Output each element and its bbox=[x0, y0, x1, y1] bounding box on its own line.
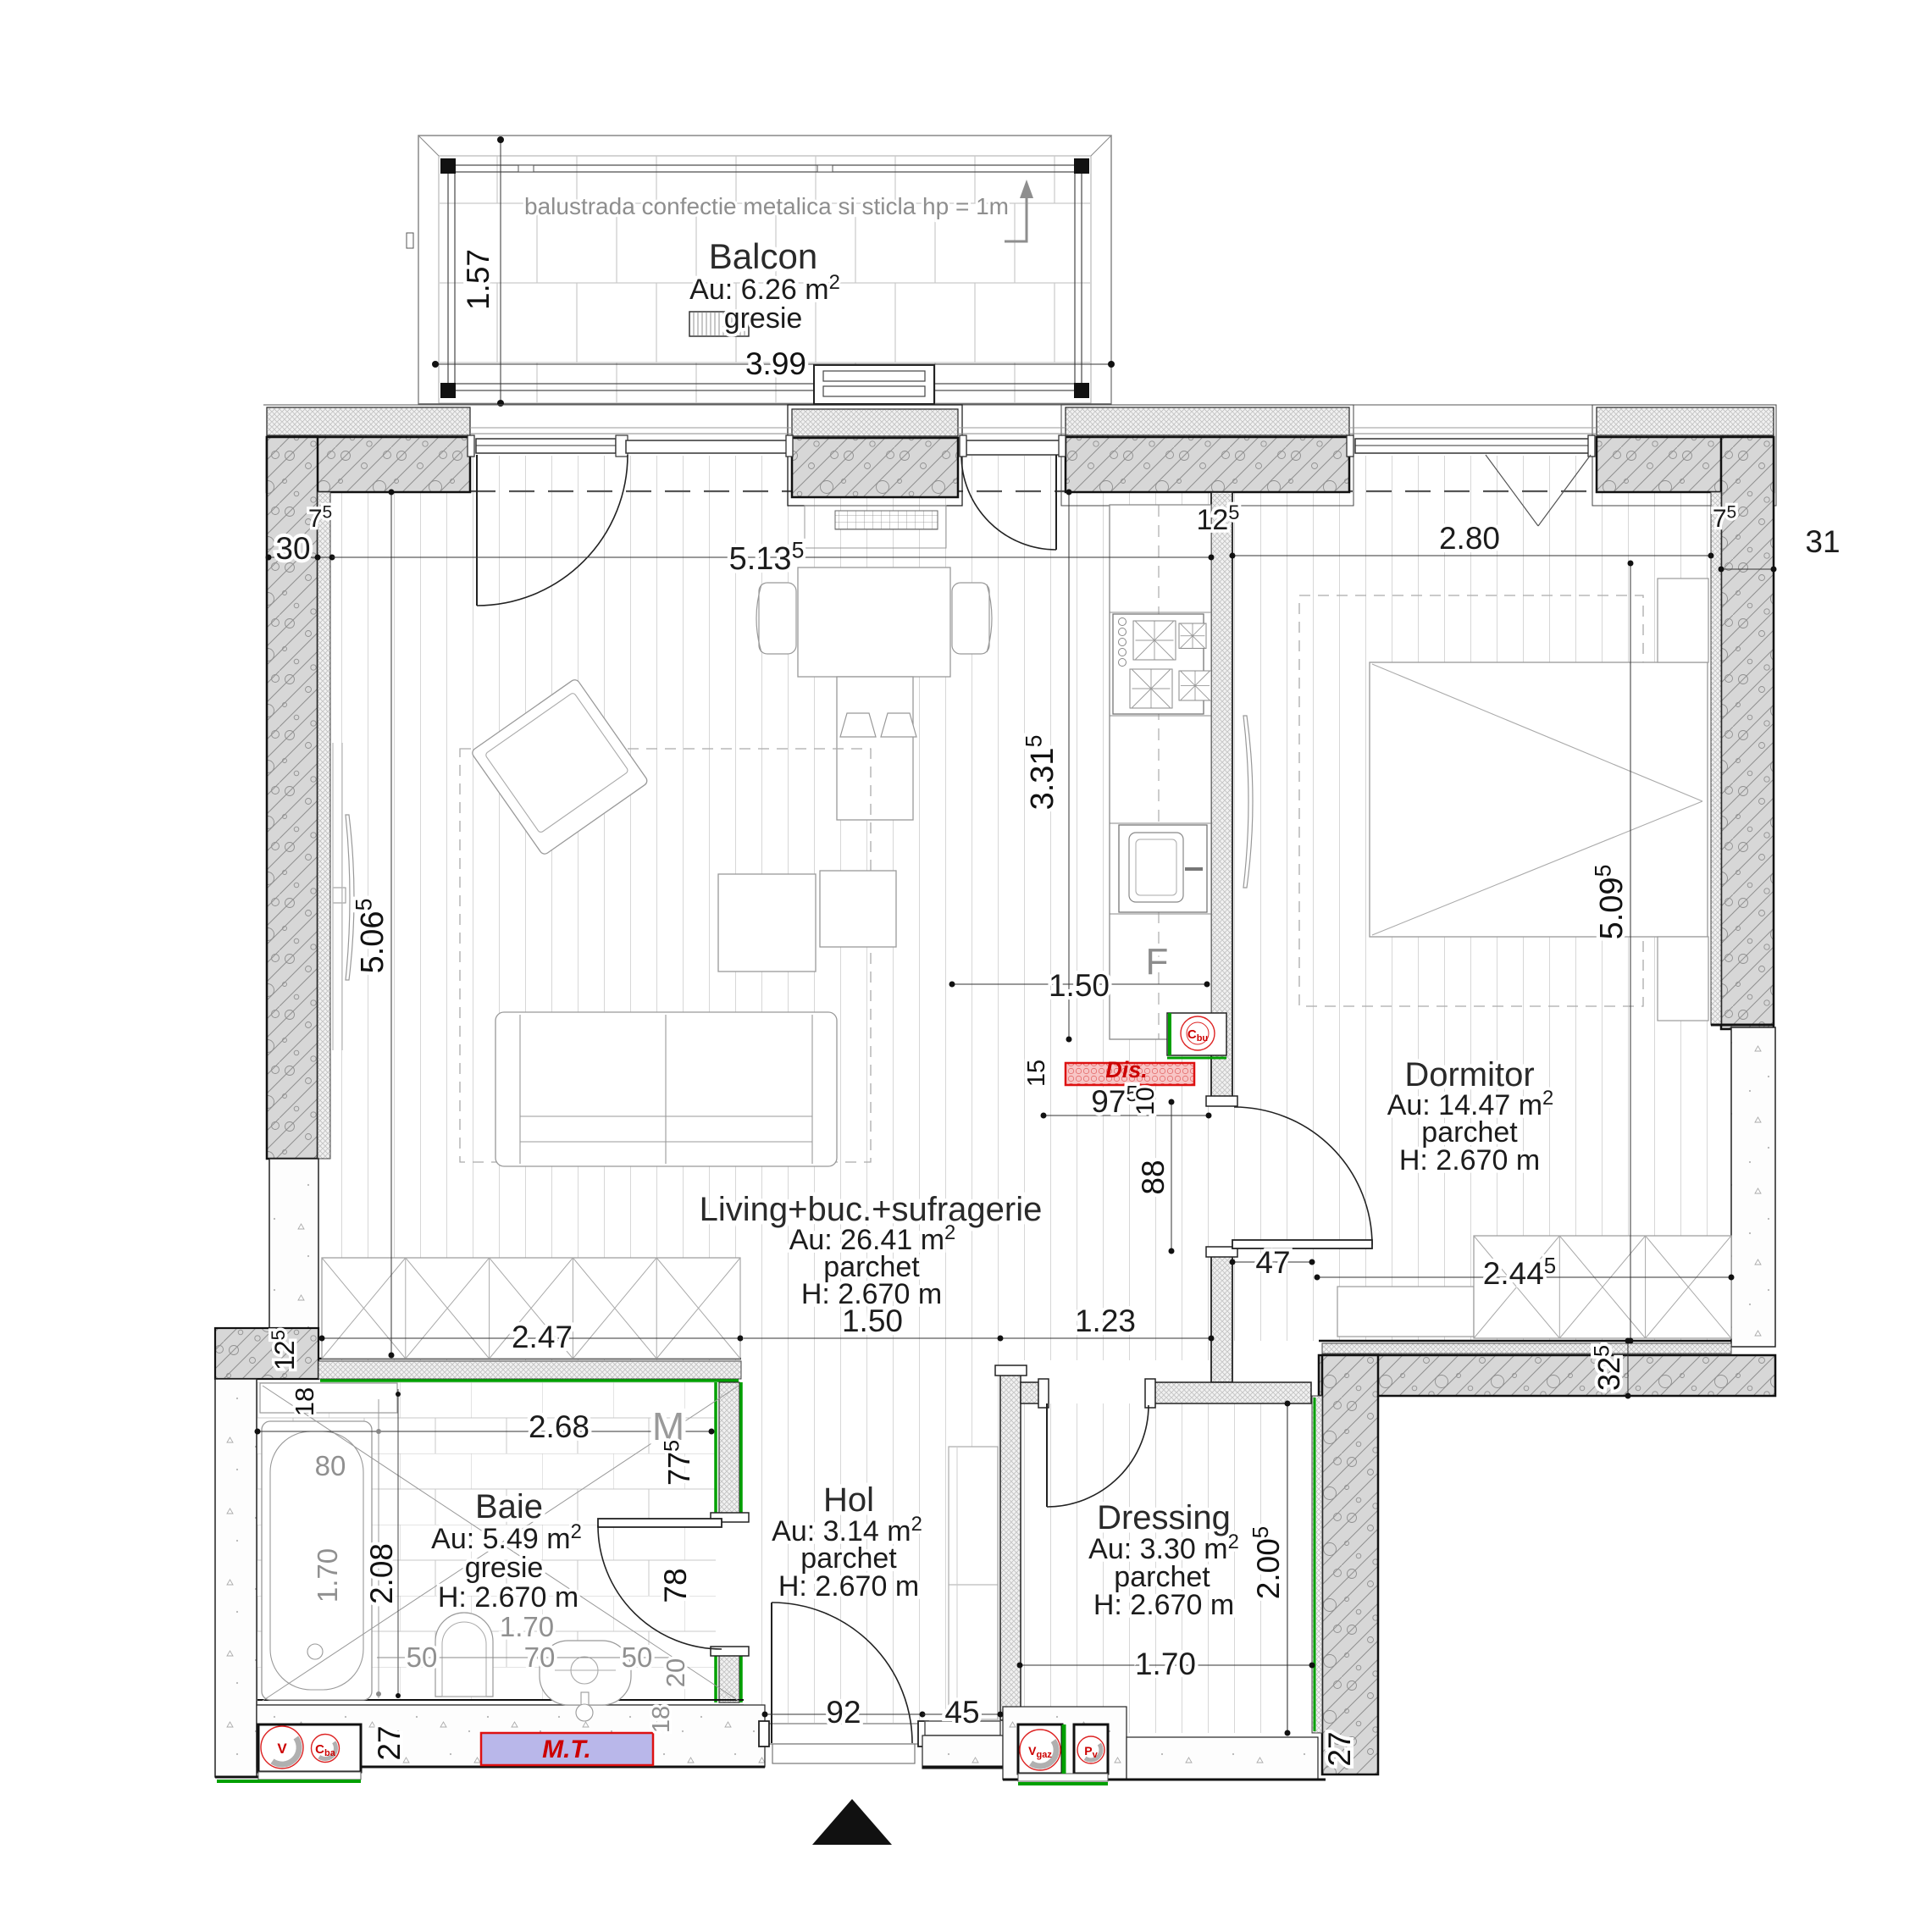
svg-text:Dormitor: Dormitor bbox=[1404, 1056, 1534, 1093]
svg-text:2.68: 2.68 bbox=[529, 1409, 590, 1444]
svg-text:1.50: 1.50 bbox=[842, 1304, 903, 1338]
svg-text:18: 18 bbox=[290, 1387, 319, 1416]
svg-text:1.70: 1.70 bbox=[1135, 1647, 1196, 1681]
svg-text:Balcon: Balcon bbox=[709, 236, 817, 276]
svg-text:gresie: gresie bbox=[724, 302, 803, 335]
svg-text:15: 15 bbox=[1023, 1060, 1050, 1087]
svg-text:balustrada confectie metalica: balustrada confectie metalica si sticla … bbox=[524, 193, 1009, 219]
svg-text:2.47: 2.47 bbox=[512, 1320, 573, 1354]
svg-text:H: 2.670 m: H: 2.670 m bbox=[778, 1570, 919, 1603]
svg-text:1.23: 1.23 bbox=[1075, 1304, 1136, 1338]
svg-text:92: 92 bbox=[826, 1695, 861, 1730]
svg-text:Dis.: Dis. bbox=[1105, 1057, 1148, 1082]
svg-text:1.50: 1.50 bbox=[1049, 968, 1110, 1003]
svg-text:2.08: 2.08 bbox=[364, 1543, 399, 1604]
svg-text:10: 10 bbox=[1132, 1087, 1160, 1115]
svg-text:88: 88 bbox=[1136, 1160, 1171, 1194]
svg-text:45: 45 bbox=[944, 1695, 979, 1730]
svg-text:H: 2.670 m: H: 2.670 m bbox=[438, 1581, 578, 1614]
svg-text:3.99: 3.99 bbox=[745, 346, 806, 381]
svg-text:2.80: 2.80 bbox=[1439, 521, 1500, 556]
svg-text:Au: 6.26 m2: Au: 6.26 m2 bbox=[689, 271, 840, 306]
svg-text:Living+buc.+sufragerie: Living+buc.+sufragerie bbox=[700, 1191, 1043, 1228]
svg-text:18: 18 bbox=[648, 1706, 675, 1733]
svg-text:78: 78 bbox=[658, 1568, 693, 1603]
svg-text:27: 27 bbox=[1322, 1731, 1357, 1766]
svg-text:80: 80 bbox=[315, 1450, 346, 1481]
svg-text:27: 27 bbox=[372, 1725, 407, 1760]
svg-text:70: 70 bbox=[524, 1641, 556, 1673]
svg-text:Au: 5.49 m2: Au: 5.49 m2 bbox=[431, 1520, 582, 1555]
svg-text:Au: 3.30 m2: Au: 3.30 m2 bbox=[1088, 1531, 1239, 1565]
svg-text:1.70: 1.70 bbox=[312, 1548, 343, 1603]
svg-text:50: 50 bbox=[622, 1641, 653, 1673]
svg-text:1.70: 1.70 bbox=[500, 1611, 554, 1642]
svg-text:H: 2.670 m: H: 2.670 m bbox=[1093, 1589, 1234, 1621]
svg-text:Hol: Hol bbox=[823, 1481, 874, 1519]
svg-text:F: F bbox=[1146, 941, 1169, 983]
svg-text:Dressing: Dressing bbox=[1097, 1499, 1231, 1536]
svg-text:30: 30 bbox=[275, 531, 310, 566]
svg-text:1.57: 1.57 bbox=[461, 249, 495, 310]
svg-text:M.T.: M.T. bbox=[542, 1735, 591, 1763]
svg-text:20: 20 bbox=[661, 1658, 690, 1687]
svg-text:47: 47 bbox=[1255, 1245, 1290, 1280]
svg-text:50: 50 bbox=[407, 1641, 438, 1673]
svg-text:Baie: Baie bbox=[475, 1488, 543, 1525]
svg-text:H: 2.670 m: H: 2.670 m bbox=[1399, 1144, 1540, 1176]
svg-text:V: V bbox=[277, 1741, 287, 1757]
svg-text:gresie: gresie bbox=[465, 1552, 544, 1584]
svg-text:31: 31 bbox=[1805, 524, 1840, 559]
